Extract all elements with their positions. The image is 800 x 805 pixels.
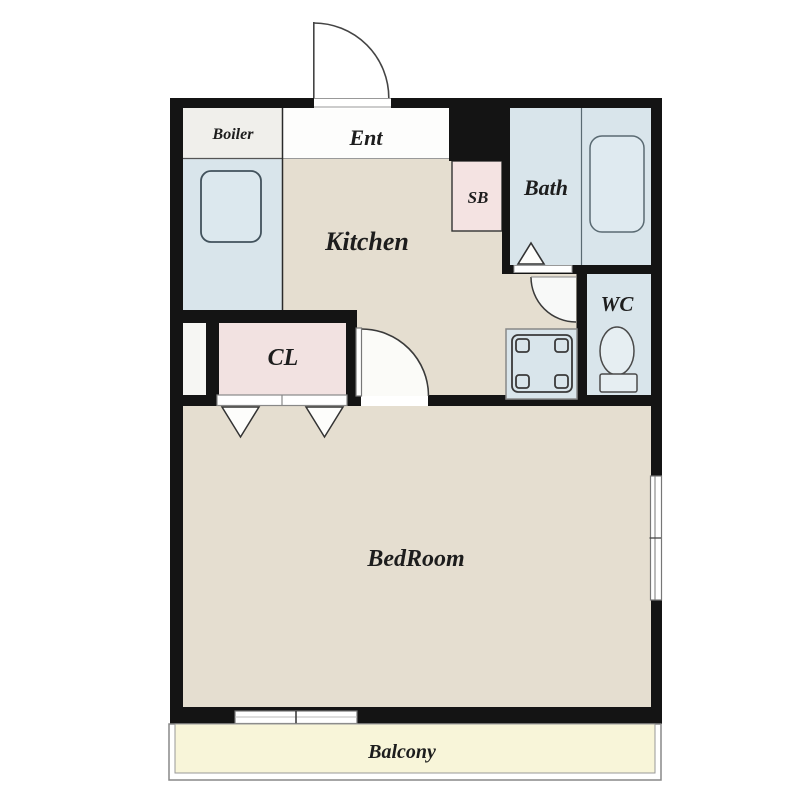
svg-text:Bath: Bath — [523, 175, 568, 200]
svg-text:WC: WC — [601, 292, 635, 316]
svg-text:Kitchen: Kitchen — [324, 227, 409, 256]
svg-text:Balcony: Balcony — [367, 741, 436, 763]
svg-text:SB: SB — [468, 188, 489, 207]
svg-text:Ent: Ent — [348, 125, 383, 150]
svg-text:CL: CL — [268, 345, 299, 371]
svg-text:BedRoom: BedRoom — [366, 546, 464, 572]
svg-text:Boiler: Boiler — [212, 126, 255, 143]
